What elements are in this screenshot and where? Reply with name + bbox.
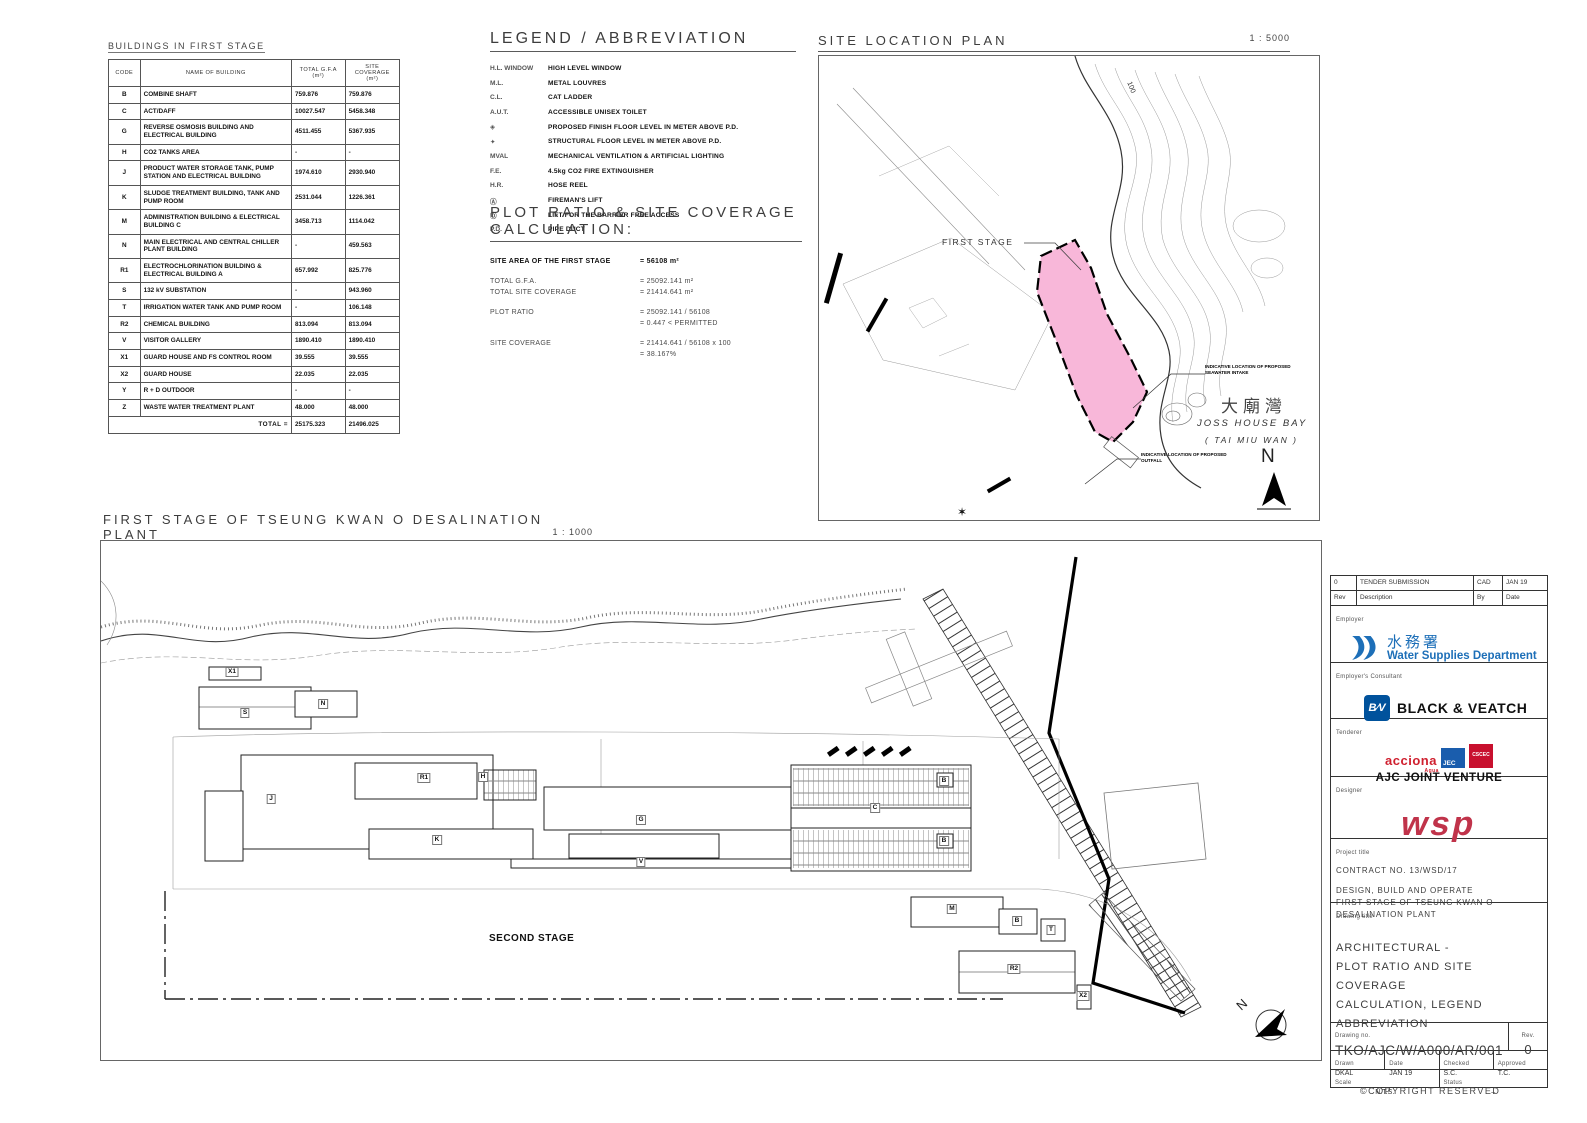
project-title-label: Project title: [1336, 850, 1370, 856]
table-row: Z WASTE WATER TREATMENT PLANT 48.000 48.…: [109, 400, 400, 417]
legend-abbr: F.E.: [490, 168, 548, 175]
table-total-row: TOTAL = 25175.323 21496.025: [109, 416, 400, 433]
pr-value: = 21414.641 m²: [640, 287, 693, 298]
checked-label: Checked: [1444, 1061, 1470, 1067]
building-gfa: -: [291, 283, 345, 300]
table-row: R2 CHEMICAL BUILDING 813.094 813.094: [109, 316, 400, 333]
legend-item: H.L. WINDOW HIGH LEVEL WINDOW: [490, 61, 796, 76]
legend-desc: ACCESSIBLE UNISEX TOILET: [548, 109, 647, 116]
building-coverage: 1890.410: [345, 333, 399, 350]
pr-label: SITE AREA OF THE FIRST STAGE: [490, 256, 640, 267]
legend-item: ✦ STRUCTURAL FLOOR LEVEL IN METER ABOVE …: [490, 134, 796, 149]
legend-item: A.U.T. ACCESSIBLE UNISEX TOILET: [490, 105, 796, 120]
building-label: K: [432, 835, 442, 845]
building-gfa: 2531.044: [291, 185, 345, 209]
building-code: G: [109, 120, 141, 144]
legend-abbr: H.R.: [490, 182, 548, 189]
building-label: R1: [417, 773, 430, 783]
building-coverage: 813.094: [345, 316, 399, 333]
second-stage-boundary: [165, 891, 1003, 999]
table-row: Y R + D OUTDOOR - -: [109, 383, 400, 400]
legend-item: F.E. 4.5kg CO2 FIRE EXTINGUISHER: [490, 164, 796, 179]
building-code: X1: [109, 350, 141, 367]
building-code: N: [109, 234, 141, 258]
intake-callout: INDICATIVE LOCATION OF PROPOSED SEAWATER…: [1205, 364, 1291, 375]
building-label: J: [267, 794, 276, 804]
building-coverage: 1114.042: [345, 210, 399, 234]
consultant-name: BLACK & VEATCH: [1397, 700, 1527, 716]
building-name: MAIN ELECTRICAL AND CENTRAL CHILLER PLAN…: [140, 234, 291, 258]
second-stage-label: SECOND STAGE: [489, 933, 574, 944]
cscec-logo: CSCEC: [1469, 744, 1493, 768]
legend-abbr: MVAL: [490, 153, 548, 160]
pr-label: TOTAL G.F.A.: [490, 276, 640, 287]
legend-abbr: C.L.: [490, 94, 548, 101]
building-name: R + D OUTDOOR: [140, 383, 291, 400]
legend-desc: FIREMAN'S LIFT: [548, 197, 603, 204]
building-coverage: -: [345, 383, 399, 400]
scale-label: Scale: [1335, 1080, 1352, 1086]
rev-col-head: Date: [1503, 591, 1547, 605]
north-arrow-icon: [1257, 472, 1291, 509]
site-location-title: SITE LOCATION PLAN1 : 5000: [818, 33, 1290, 52]
building-coverage: 759.876: [345, 87, 399, 104]
employer-name-en: Water Supplies Department: [1387, 650, 1537, 662]
building-coverage: 48.000: [345, 400, 399, 417]
building-label: X1: [226, 667, 239, 677]
building-gfa: 4511.455: [291, 120, 345, 144]
table-row: M ADMINISTRATION BUILDING & ELECTRICAL B…: [109, 210, 400, 234]
pr-label: [490, 318, 640, 329]
building-name: ADMINISTRATION BUILDING & ELECTRICAL BUI…: [140, 210, 291, 234]
site-map-drawing: ✶: [819, 56, 1319, 520]
pr-label: PLOT RATIO: [490, 307, 640, 318]
table-row: R1 ELECTROCHLORINATION BUILDING & ELECTR…: [109, 258, 400, 282]
col-code: CODE: [109, 60, 141, 87]
building-gfa: 39.555: [291, 350, 345, 367]
pr-value: = 0.447 < PERMITTED: [640, 318, 718, 329]
rev-col-head: Rev: [1331, 591, 1357, 605]
drawing-title-line: ARCHITECTURAL -: [1336, 939, 1542, 958]
building-gfa: 10027.547: [291, 103, 345, 120]
table-row: X1 GUARD HOUSE AND FS CONTROL ROOM 39.55…: [109, 350, 400, 367]
building-name: ACT/DAFF: [140, 103, 291, 120]
bay-name-english: JOSS HOUSE BAY: [1197, 418, 1307, 429]
table-row: C ACT/DAFF 10027.547 5458.348: [109, 103, 400, 120]
building-label: V: [636, 857, 645, 867]
legend-item: MVAL MECHANICAL VENTILATION & ARTIFICIAL…: [490, 149, 796, 164]
building-gfa: 1890.410: [291, 333, 345, 350]
rev-col-head: Description: [1357, 591, 1474, 605]
plot-ratio-section: PLOT RATIO & SITE COVERAGE CALCULATION: …: [490, 204, 802, 360]
building-name: ELECTROCHLORINATION BUILDING & ELECTRICA…: [140, 258, 291, 282]
building-name: 132 kV SUBSTATION: [140, 283, 291, 300]
building-code: K: [109, 185, 141, 209]
legend-item: ◈ PROPOSED FINISH FLOOR LEVEL IN METER A…: [490, 120, 796, 135]
drawing-title-line: PLOT RATIO AND SITE COVERAGE: [1336, 958, 1542, 996]
building-coverage: 22.035: [345, 366, 399, 383]
building-name: WASTE WATER TREATMENT PLANT: [140, 400, 291, 417]
legend-desc: PROPOSED FINISH FLOOR LEVEL IN METER ABO…: [548, 124, 738, 131]
table-row: G REVERSE OSMOSIS BUILDING AND ELECTRICA…: [109, 120, 400, 144]
building-code: H: [109, 144, 141, 161]
legend-desc: HOSE REEL: [548, 182, 588, 189]
building-gfa: 3458.713: [291, 210, 345, 234]
legend-abbr: ◈: [490, 123, 548, 131]
drawing-title-label: Drawing title: [1336, 914, 1373, 920]
table-header-row: CODE NAME OF BUILDING TOTAL G.F.A (m²) S…: [109, 60, 400, 87]
building-label: H: [478, 772, 488, 782]
tenderer-label: Tenderer: [1336, 730, 1362, 736]
outfall-callout: INDICATIVE LOCATION OF PROPOSED OUTFALL: [1141, 452, 1227, 463]
building-coverage: 39.555: [345, 350, 399, 367]
total-coverage: 21496.025: [345, 416, 399, 433]
employer-label: Employer: [1336, 617, 1364, 623]
pr-value: = 25092.141 / 56108: [640, 307, 710, 318]
rev-date: JAN 19: [1503, 576, 1547, 591]
legend-abbr: A.U.T.: [490, 109, 548, 116]
drawing-title-line: ABBREVIATION: [1336, 1015, 1542, 1034]
building-label: N: [318, 699, 328, 709]
bay-name-sub: ( TAI MIU WAN ): [1205, 435, 1298, 445]
date-label: Date: [1389, 1061, 1403, 1067]
main-plan-drawing: [101, 541, 1321, 1060]
col-coverage: SITE COVERAGE (m²): [345, 60, 399, 87]
building-gfa: 22.035: [291, 366, 345, 383]
building-code: X2: [109, 366, 141, 383]
project-line: DESIGN, BUILD AND OPERATE: [1336, 885, 1542, 897]
pr-value: = 56108 m²: [640, 256, 679, 267]
drawing-title-line: CALCULATION, LEGEND: [1336, 996, 1542, 1015]
building-label: X2: [1077, 991, 1090, 1001]
employer-name-cn: 水務署: [1387, 635, 1537, 650]
title-block: 0 TENDER SUBMISSION CAD JAN 19 Rev Descr…: [1330, 575, 1548, 1088]
building-name: CHEMICAL BUILDING: [140, 316, 291, 333]
consultant-section: Employer's Consultant B⁄V BLACK & VEATCH: [1331, 663, 1547, 719]
loading-bays: [827, 746, 912, 757]
building-coverage: 825.776: [345, 258, 399, 282]
main-plan-scale: 1 : 1000: [552, 527, 593, 537]
total-label: TOTAL =: [109, 416, 292, 433]
legend-desc: HIGH LEVEL WINDOW: [548, 65, 622, 72]
building-code: R1: [109, 258, 141, 282]
approved-label: Approved: [1498, 1061, 1526, 1067]
building-name: SLUDGE TREATMENT BUILDING, TANK AND PUMP…: [140, 185, 291, 209]
building-name: GUARD HOUSE: [140, 366, 291, 383]
building-name: REVERSE OSMOSIS BUILDING AND ELECTRICAL …: [140, 120, 291, 144]
building-code: M: [109, 210, 141, 234]
pr-label: [490, 349, 640, 360]
building-name: COMBINE SHAFT: [140, 87, 291, 104]
legend-desc: CAT LADDER: [548, 94, 592, 101]
jec-logo: JEC: [1441, 748, 1465, 768]
building-label: B: [939, 776, 949, 786]
legend-desc: MECHANICAL VENTILATION & ARTIFICIAL LIGH…: [548, 153, 724, 160]
revision-table: 0 TENDER SUBMISSION CAD JAN 19 Rev Descr…: [1331, 576, 1547, 605]
project-title-section: Project title CONTRACT NO. 13/WSD/17 DES…: [1331, 839, 1547, 903]
pr-label: SITE COVERAGE: [490, 338, 640, 349]
contract-no: CONTRACT NO. 13/WSD/17: [1336, 865, 1542, 877]
legend-abbr: ✦: [490, 138, 548, 146]
building-name: IRRIGATION WATER TANK AND PUMP ROOM: [140, 300, 291, 317]
table-row: X2 GUARD HOUSE 22.035 22.035: [109, 366, 400, 383]
tenderer-section: Tenderer accionaAgua JEC CSCEC AJC JOINT…: [1331, 719, 1547, 777]
plot-ratio-title: PLOT RATIO & SITE COVERAGE CALCULATION:: [490, 204, 802, 242]
table-row: N MAIN ELECTRICAL AND CENTRAL CHILLER PL…: [109, 234, 400, 258]
drawn-row: DrawnDKAL DateJAN 19 CheckedS.C. Approve…: [1331, 1051, 1547, 1070]
table-row: B COMBINE SHAFT 759.876 759.876: [109, 87, 400, 104]
building-gfa: 657.992: [291, 258, 345, 282]
building-coverage: 5458.348: [345, 103, 399, 120]
legend-item: C.L. CAT LADDER: [490, 90, 796, 105]
building-code: V: [109, 333, 141, 350]
north-arrow-icon: [1255, 1009, 1287, 1040]
building-gfa: 813.094: [291, 316, 345, 333]
building-label: M: [947, 904, 957, 914]
building-coverage: 943.960: [345, 283, 399, 300]
consultant-label: Employer's Consultant: [1336, 674, 1402, 680]
building-label: G: [636, 815, 646, 825]
building-coverage: 1226.361: [345, 185, 399, 209]
legend-desc: 4.5kg CO2 FIRE EXTINGUISHER: [548, 168, 654, 175]
table-row: S 132 kV SUBSTATION - 943.960: [109, 283, 400, 300]
building-label: T: [1047, 925, 1056, 935]
building-coverage: 2930.940: [345, 161, 399, 185]
building-coverage: -: [345, 144, 399, 161]
building-code: S: [109, 283, 141, 300]
legend-item: M.L. METAL LOUVRES: [490, 76, 796, 91]
designer-section: Designer wsp: [1331, 777, 1547, 839]
buildings-table-title: BUILDINGS IN FIRST STAGE: [108, 41, 265, 53]
site-location-scale: 1 : 5000: [1249, 33, 1290, 43]
survey-star-icon: ✶: [957, 505, 967, 519]
col-gfa: TOTAL G.F.A (m²): [291, 60, 345, 87]
employer-section: Employer 水務署 Water Supplies Department: [1331, 605, 1547, 663]
table-row: K SLUDGE TREATMENT BUILDING, TANK AND PU…: [109, 185, 400, 209]
main-plan: X1SNJR1HKGVCBBMBTR2X2 SECOND STAGE N: [100, 540, 1322, 1061]
pr-value: = 38.167%: [640, 349, 676, 360]
table-row: H CO2 TANKS AREA - -: [109, 144, 400, 161]
rev-col-head: By: [1474, 591, 1503, 605]
wsd-logo: [1348, 632, 1382, 664]
pr-label: TOTAL SITE COVERAGE: [490, 287, 640, 298]
building-name: VISITOR GALLERY: [140, 333, 291, 350]
building-name: CO2 TANKS AREA: [140, 144, 291, 161]
legend-desc: STRUCTURAL FLOOR LEVEL IN METER ABOVE P.…: [548, 138, 721, 145]
legend-abbr: M.L.: [490, 80, 548, 87]
acciona-logo: accionaAgua: [1385, 753, 1437, 768]
rev-number: 0: [1331, 576, 1357, 591]
legend-desc: METAL LOUVRES: [548, 80, 606, 87]
building-label: B: [939, 836, 949, 846]
pr-value: = 25092.141 m²: [640, 276, 693, 287]
black-and-veatch-logo: B⁄V: [1364, 695, 1390, 721]
building-code: Z: [109, 400, 141, 417]
building-label: R2: [1007, 964, 1020, 974]
drawing-title-section: Drawing title ARCHITECTURAL - PLOT RATIO…: [1331, 903, 1547, 1023]
table-row: T IRRIGATION WATER TANK AND PUMP ROOM - …: [109, 300, 400, 317]
total-gfa: 25175.323: [291, 416, 345, 433]
buildings-group: [199, 667, 1091, 1009]
rev-by: CAD: [1474, 576, 1503, 591]
site-location-plan: ✶ FIRST STAGE 大廟灣 JOSS HOUSE BAY ( TAI M…: [818, 55, 1320, 521]
building-code: B: [109, 87, 141, 104]
building-label: S: [240, 708, 249, 718]
building-code: J: [109, 161, 141, 185]
building-gfa: -: [291, 300, 345, 317]
building-label: C: [870, 803, 880, 813]
table-row: J PRODUCT WATER STORAGE TANK, PUMP STATI…: [109, 161, 400, 185]
scale-row: ScaleN.T.S. Status–: [1331, 1070, 1547, 1087]
building-coverage: 106.148: [345, 300, 399, 317]
legend-item: H.R. HOSE REEL: [490, 179, 796, 194]
copyright-notice: ©COPYRIGHT RESERVED: [1360, 1086, 1500, 1096]
building-name: GUARD HOUSE AND FS CONTROL ROOM: [140, 350, 291, 367]
first-stage-label: FIRST STAGE: [942, 237, 1013, 247]
legend-abbr: H.L. WINDOW: [490, 65, 548, 72]
bay-name-chinese: 大廟灣: [1221, 392, 1287, 417]
rev-description: TENDER SUBMISSION: [1357, 576, 1474, 591]
north-label: N: [1261, 446, 1275, 468]
building-code: C: [109, 103, 141, 120]
building-name: PRODUCT WATER STORAGE TANK, PUMP STATION…: [140, 161, 291, 185]
building-label: B: [1012, 916, 1022, 926]
col-name: NAME OF BUILDING: [140, 60, 291, 87]
building-coverage: 5367.935: [345, 120, 399, 144]
building-gfa: 48.000: [291, 400, 345, 417]
building-gfa: 1974.610: [291, 161, 345, 185]
designer-label: Designer: [1336, 788, 1362, 794]
map-thick-bar: [824, 252, 843, 303]
buildings-table: CODE NAME OF BUILDING TOTAL G.F.A (m²) S…: [108, 59, 400, 434]
drawn-label: Drawn: [1335, 1061, 1354, 1067]
first-stage-site-highlight: [1037, 240, 1147, 442]
building-gfa: -: [291, 383, 345, 400]
building-code: R2: [109, 316, 141, 333]
building-code: Y: [109, 383, 141, 400]
building-gfa: -: [291, 234, 345, 258]
building-code: T: [109, 300, 141, 317]
pr-value: = 21414.641 / 56108 x 100: [640, 338, 731, 349]
table-row: V VISITOR GALLERY 1890.410 1890.410: [109, 333, 400, 350]
buildings-table-section: BUILDINGS IN FIRST STAGE CODE NAME OF BU…: [108, 36, 400, 434]
building-gfa: 759.876: [291, 87, 345, 104]
legend-title: LEGEND / ABBREVIATION: [490, 30, 796, 52]
building-gfa: -: [291, 144, 345, 161]
building-coverage: 459.563: [345, 234, 399, 258]
site-location-header: SITE LOCATION PLAN1 : 5000: [818, 33, 1290, 52]
parking-hatch: [1089, 893, 1195, 1001]
